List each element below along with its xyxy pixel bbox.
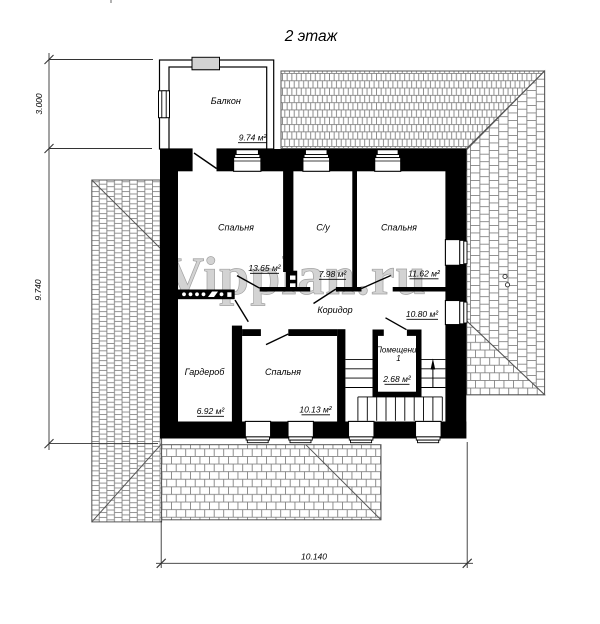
svg-text:Гардероб: Гардероб (185, 367, 226, 377)
svg-text:1: 1 (396, 354, 400, 363)
svg-text:9.74 м²: 9.74 м² (239, 133, 268, 143)
svg-text:2.68 м²: 2.68 м² (382, 374, 412, 384)
svg-text:9.740: 9.740 (33, 279, 43, 301)
svg-text:10.13 м²: 10.13 м² (299, 405, 332, 415)
svg-text:11.62 м²: 11.62 м² (408, 269, 441, 279)
svg-text:2 этаж: 2 этаж (284, 28, 339, 45)
svg-text:13.65 м²: 13.65 м² (248, 263, 281, 273)
svg-text:3.000: 3.000 (34, 93, 44, 115)
svg-text:Спальня: Спальня (218, 223, 254, 233)
svg-text:10.140: 10.140 (301, 552, 327, 562)
svg-text:7.98 м²: 7.98 м² (319, 269, 348, 279)
svg-text:Спальня: Спальня (381, 223, 417, 233)
svg-text:Балкон: Балкон (211, 96, 241, 106)
svg-text:Коридор: Коридор (317, 305, 352, 315)
svg-text:10.80 м²: 10.80 м² (406, 309, 439, 319)
svg-text:Спальня: Спальня (265, 367, 301, 377)
svg-text:6.92 м²: 6.92 м² (197, 406, 226, 416)
svg-text:С/у: С/у (316, 223, 330, 233)
